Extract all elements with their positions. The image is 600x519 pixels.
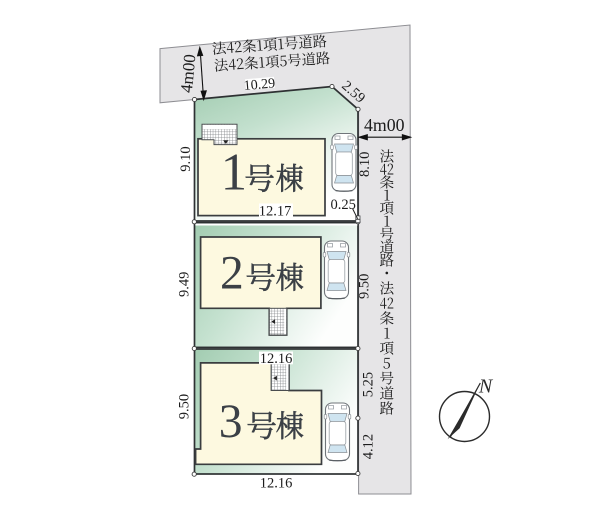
svg-text:8.10: 8.10: [357, 152, 373, 177]
svg-text:4.12: 4.12: [360, 434, 376, 459]
svg-text:0.25: 0.25: [331, 197, 356, 213]
svg-text:9.10: 9.10: [178, 146, 194, 171]
svg-text:12.17: 12.17: [259, 203, 292, 219]
svg-text:3: 3: [219, 396, 243, 448]
svg-text:9.50: 9.50: [177, 394, 193, 419]
svg-text:4m00: 4m00: [177, 53, 200, 93]
svg-text:9.49: 9.49: [177, 272, 193, 297]
svg-text:2: 2: [220, 248, 244, 300]
svg-text:12.16: 12.16: [260, 351, 293, 367]
svg-text:4m00: 4m00: [364, 115, 405, 135]
svg-text:12.16: 12.16: [260, 476, 293, 492]
svg-text:N: N: [478, 375, 494, 397]
svg-text:10.29: 10.29: [243, 76, 276, 94]
svg-text:9.50: 9.50: [357, 274, 373, 299]
svg-text:5.25: 5.25: [360, 372, 376, 397]
svg-text:1: 1: [221, 144, 248, 202]
